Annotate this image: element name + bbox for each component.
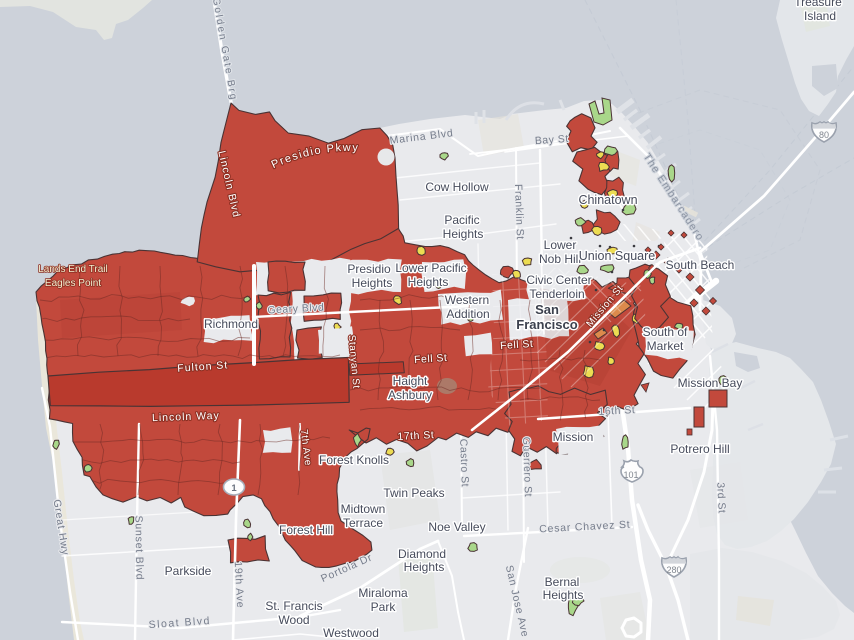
svg-text:Western: Western [445, 293, 489, 307]
svg-text:Wood: Wood [278, 613, 309, 627]
svg-text:Heights: Heights [404, 560, 445, 574]
svg-text:Nob Hill: Nob Hill [539, 252, 581, 266]
svg-text:Fell St: Fell St [500, 338, 534, 352]
svg-text:Tenderloin: Tenderloin [529, 287, 584, 301]
svg-text:Haight: Haight [393, 374, 428, 388]
svg-text:Union Square: Union Square [579, 249, 655, 263]
svg-text:3rd St: 3rd St [714, 482, 728, 514]
svg-text:Twin Peaks: Twin Peaks [383, 486, 444, 500]
svg-text:Guerrero St: Guerrero St [520, 437, 534, 498]
svg-text:Heights: Heights [543, 588, 584, 602]
svg-text:South of: South of [643, 325, 688, 339]
svg-text:Terrace: Terrace [343, 516, 383, 530]
svg-text:Bay St: Bay St [534, 133, 569, 147]
svg-text:Forest Knolls: Forest Knolls [319, 453, 389, 467]
svg-text:16th St: 16th St [598, 404, 635, 418]
svg-text:Sunset Blvd: Sunset Blvd [132, 515, 145, 580]
svg-text:Mission: Mission [553, 430, 594, 444]
svg-text:1: 1 [231, 483, 237, 494]
svg-text:Lower Pacific: Lower Pacific [395, 261, 466, 275]
svg-text:Castro St: Castro St [457, 439, 471, 488]
svg-text:Pacific: Pacific [444, 213, 479, 227]
svg-text:80: 80 [819, 130, 829, 140]
svg-text:Miraloma: Miraloma [358, 586, 408, 600]
svg-text:Presidio: Presidio [347, 262, 391, 276]
svg-text:101: 101 [623, 470, 638, 480]
svg-text:Eagles Point: Eagles Point [45, 278, 101, 289]
svg-text:Chinatown: Chinatown [578, 193, 637, 207]
svg-text:Cow Hollow: Cow Hollow [425, 180, 489, 194]
svg-text:Richmond: Richmond [204, 317, 258, 331]
svg-text:Ashbury: Ashbury [388, 388, 432, 402]
svg-text:280: 280 [666, 565, 681, 575]
svg-text:Franklin St: Franklin St [512, 184, 526, 240]
svg-text:Potrero Hill: Potrero Hill [670, 442, 729, 456]
svg-text:Lower: Lower [544, 238, 577, 252]
svg-text:Market: Market [647, 339, 684, 353]
svg-text:South Beach: South Beach [666, 258, 735, 272]
svg-text:Heights: Heights [352, 276, 393, 290]
svg-text:Addition: Addition [446, 307, 489, 321]
svg-text:Noe Valley: Noe Valley [428, 520, 485, 534]
svg-text:Fell St: Fell St [414, 352, 448, 366]
svg-text:Treasure: Treasure [794, 0, 842, 9]
svg-text:Forest Hill: Forest Hill [279, 523, 333, 537]
svg-text:Heights: Heights [408, 275, 449, 289]
svg-text:Parkside: Parkside [165, 564, 212, 578]
svg-text:Mission Bay: Mission Bay [678, 376, 743, 390]
svg-text:Francisco: Francisco [516, 317, 577, 332]
svg-text:Midtown: Midtown [341, 502, 386, 516]
svg-text:Heights: Heights [443, 227, 484, 241]
svg-text:Island: Island [804, 9, 836, 23]
svg-text:Westwood: Westwood [323, 626, 379, 640]
svg-text:Park: Park [371, 600, 397, 614]
svg-text:17th St: 17th St [397, 429, 434, 443]
svg-text:Civic Center: Civic Center [526, 273, 591, 287]
svg-text:San: San [535, 302, 559, 317]
svg-text:Diamond: Diamond [398, 547, 446, 561]
svg-text:Lincoln Way: Lincoln Way [152, 410, 220, 424]
svg-text:19th Ave: 19th Ave [232, 561, 246, 609]
svg-text:Bernal: Bernal [545, 575, 580, 589]
svg-text:Lands End Trail: Lands End Trail [38, 264, 108, 275]
svg-text:St. Francis: St. Francis [265, 599, 322, 613]
